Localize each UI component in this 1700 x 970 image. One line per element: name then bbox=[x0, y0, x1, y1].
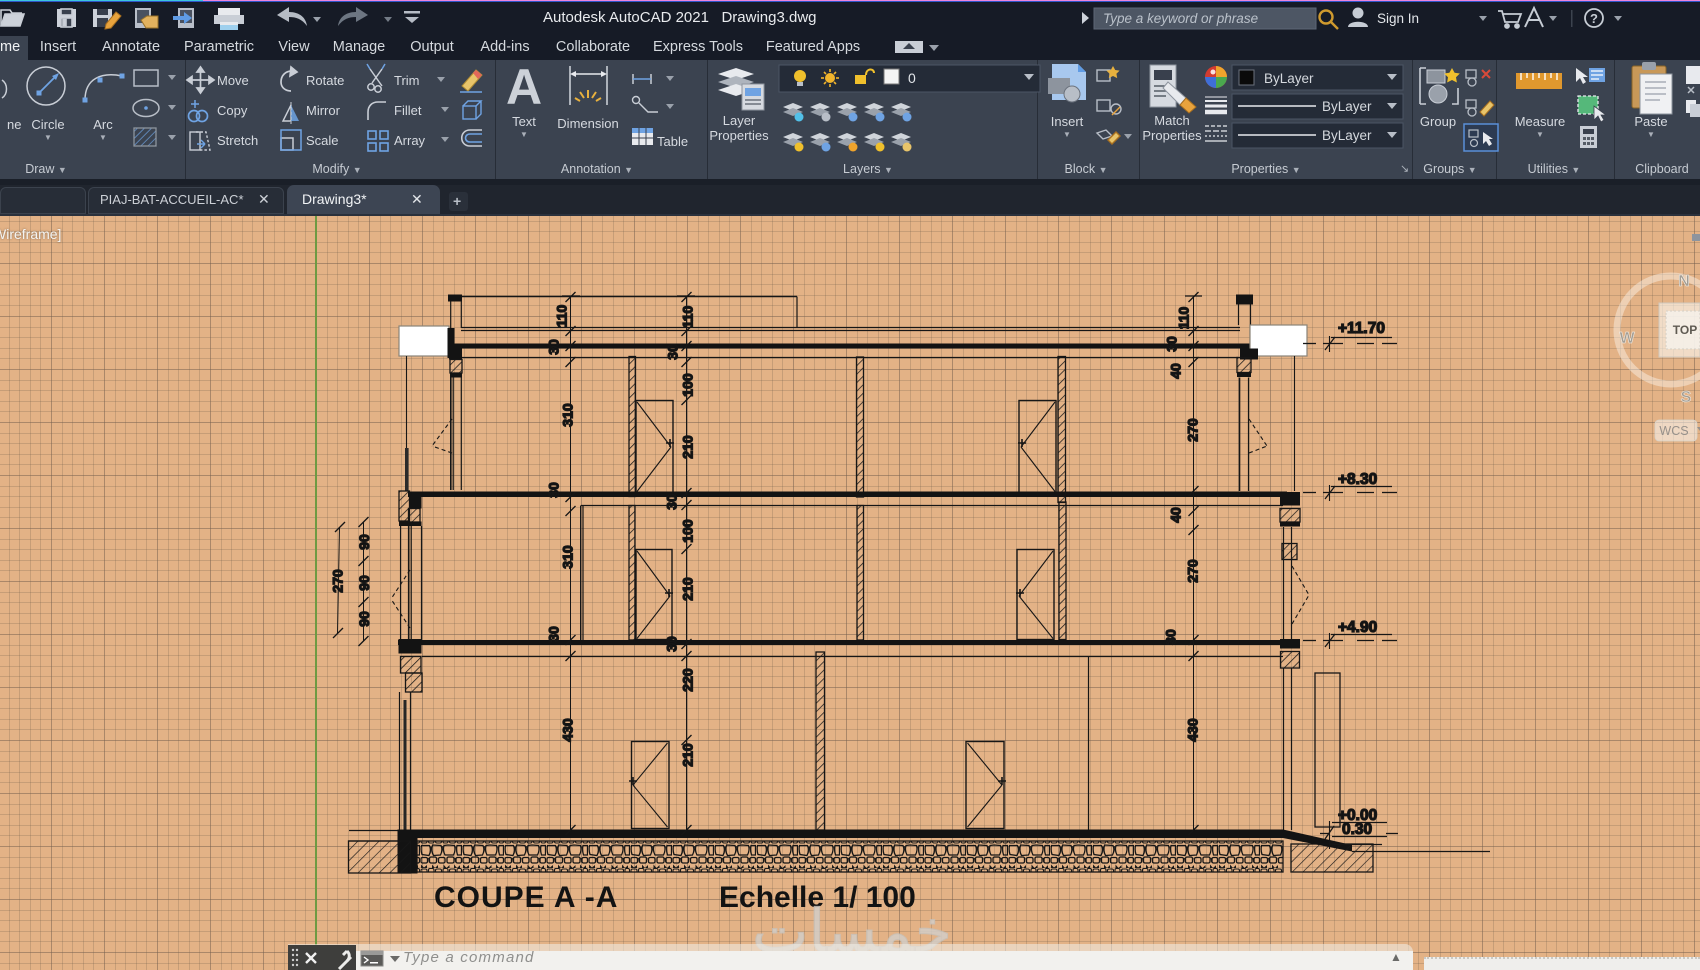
svg-text:30: 30 bbox=[664, 636, 680, 652]
svg-text:270: 270 bbox=[1185, 559, 1201, 583]
svg-text:430: 430 bbox=[560, 718, 576, 742]
svg-text:COUPE A -A: COUPE A -A bbox=[434, 881, 618, 914]
svg-text:30: 30 bbox=[546, 339, 562, 355]
svg-text:90: 90 bbox=[356, 534, 372, 550]
svg-text:220: 220 bbox=[680, 668, 696, 692]
svg-text:430: 430 bbox=[1185, 718, 1201, 742]
svg-text:270: 270 bbox=[330, 569, 346, 593]
svg-text:+8.30: +8.30 bbox=[1338, 471, 1377, 488]
svg-text:110: 110 bbox=[680, 305, 696, 328]
svg-text:WCS: WCS bbox=[1659, 424, 1688, 438]
svg-text:40: 40 bbox=[1168, 507, 1184, 523]
svg-text:30: 30 bbox=[664, 494, 680, 510]
svg-text:+11.70: +11.70 bbox=[1338, 320, 1385, 337]
svg-text:110: 110 bbox=[554, 304, 570, 327]
svg-text:310: 310 bbox=[560, 545, 576, 569]
svg-text:100: 100 bbox=[680, 373, 696, 397]
svg-text:270: 270 bbox=[1185, 418, 1201, 442]
svg-text:30: 30 bbox=[1164, 336, 1180, 352]
svg-text:TOP: TOP bbox=[1673, 323, 1697, 337]
svg-text:30: 30 bbox=[546, 482, 562, 498]
svg-text:+4.90: +4.90 bbox=[1338, 619, 1377, 636]
svg-text:0.30: 0.30 bbox=[1342, 821, 1372, 838]
svg-text:210: 210 bbox=[680, 577, 696, 601]
svg-text:310: 310 bbox=[560, 403, 576, 427]
svg-text:30: 30 bbox=[1163, 629, 1179, 645]
svg-text:90: 90 bbox=[356, 611, 372, 627]
svg-text:N: N bbox=[1678, 273, 1690, 290]
svg-text:210: 210 bbox=[680, 435, 696, 459]
svg-text:30: 30 bbox=[665, 344, 681, 360]
svg-text:100: 100 bbox=[680, 519, 696, 543]
svg-text:30: 30 bbox=[546, 626, 562, 642]
svg-text:40: 40 bbox=[1168, 363, 1184, 379]
svg-text:W: W bbox=[1619, 330, 1635, 347]
svg-text:S: S bbox=[1681, 389, 1692, 406]
svg-text:110: 110 bbox=[1176, 306, 1192, 329]
svg-text:90: 90 bbox=[356, 575, 372, 591]
svg-text:210: 210 bbox=[680, 743, 696, 767]
